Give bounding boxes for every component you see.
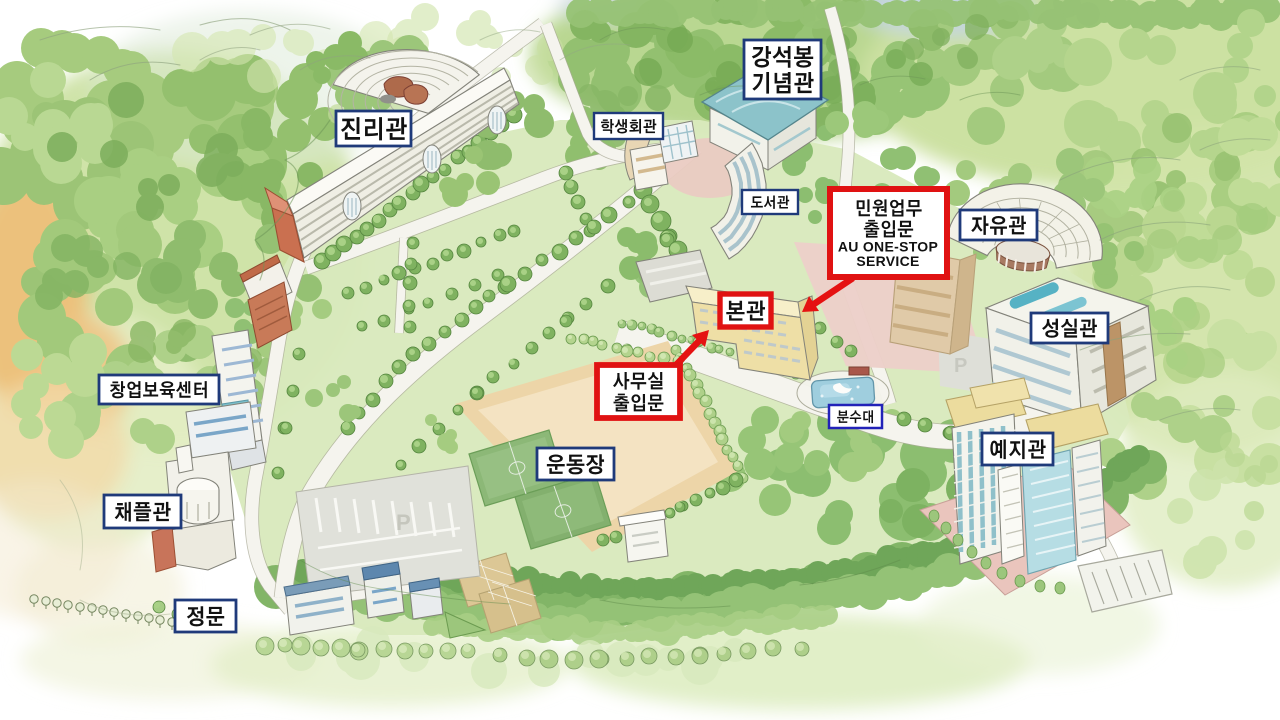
svg-text:AU ONE-STOP: AU ONE-STOP [838, 239, 938, 255]
svg-text:SERVICE: SERVICE [856, 253, 919, 269]
svg-text:P: P [396, 510, 411, 535]
svg-text:P: P [954, 355, 967, 377]
